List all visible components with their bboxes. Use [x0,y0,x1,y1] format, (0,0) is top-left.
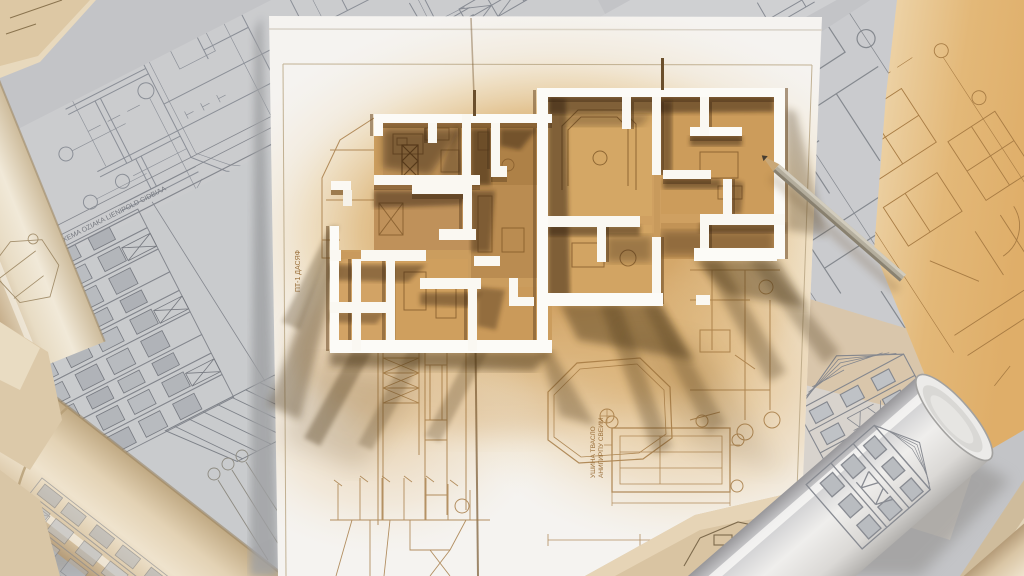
svg-text:УШИНА ТВАСЛО: УШИНА ТВАСЛО [590,426,597,478]
svg-text:АНИГИРПУ СВЕИМ: АНИГИРПУ СВЕИМ [598,418,605,478]
